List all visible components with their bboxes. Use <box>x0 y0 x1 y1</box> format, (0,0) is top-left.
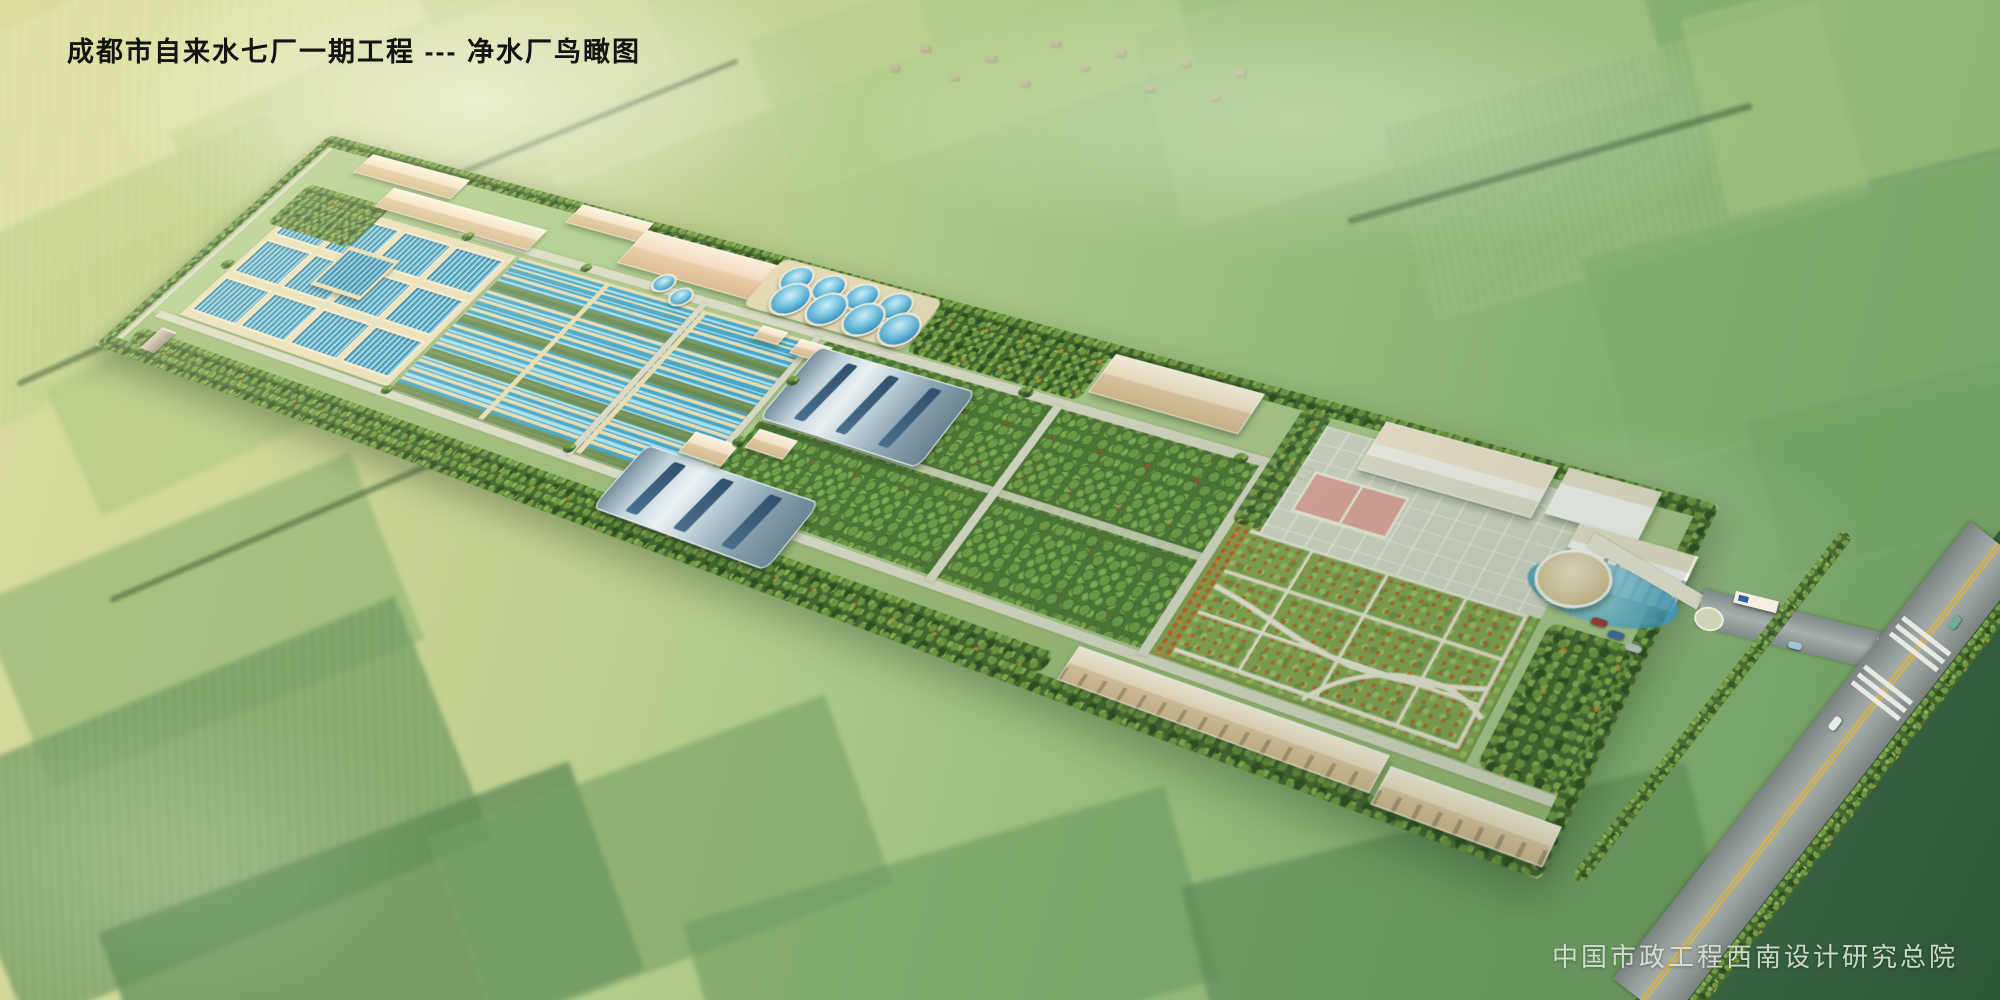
car <box>1947 614 1962 630</box>
channel-walkway <box>478 282 612 419</box>
skylight <box>625 462 686 515</box>
skylight <box>834 375 900 435</box>
crosswalk <box>1851 662 1916 721</box>
crosswalk <box>1889 612 1955 673</box>
skylight <box>673 478 734 532</box>
channel-walkway <box>575 310 708 454</box>
skylight <box>793 363 858 422</box>
design-institute-credit: 中国市政工程西南设计研究总院 <box>1552 937 1958 974</box>
page-title: 成都市自来水七厂一期工程 --- 净水厂鸟瞰图 <box>67 30 641 69</box>
gate-sign <box>1738 595 1749 603</box>
rendering-canvas: 成都市自来水七厂一期工程 --- 净水厂鸟瞰图 中国市政工程西南设计研究总院 <box>0 0 2000 1000</box>
court-centerline <box>1339 487 1363 523</box>
skylight <box>721 494 782 549</box>
skylight <box>877 388 943 449</box>
car <box>1827 715 1843 732</box>
